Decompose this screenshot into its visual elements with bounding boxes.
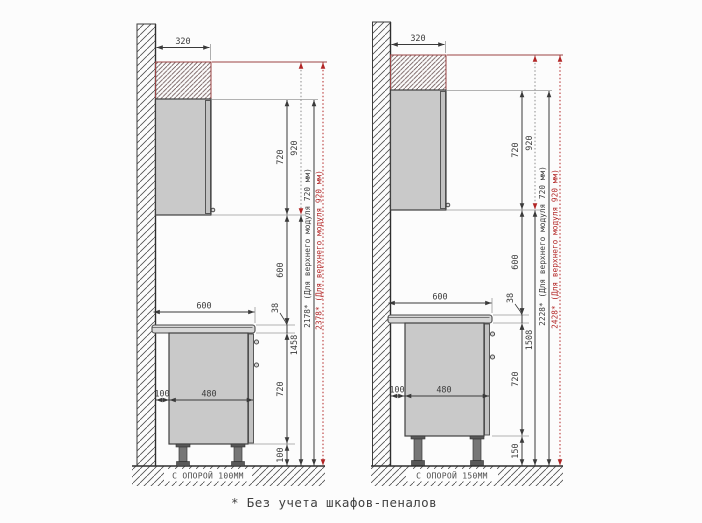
dim-total-920: 2428* (Для верхнего модуля 920 мм)	[551, 169, 560, 329]
door-knob	[254, 363, 258, 367]
dim-upper-width: 320	[175, 37, 190, 47]
dim-base-depth: 480	[201, 390, 216, 400]
dim-leg-height: 100	[276, 447, 286, 462]
dim-gap: 600	[276, 262, 286, 277]
wall	[372, 22, 391, 466]
wall-cabinet-920-extension	[391, 55, 447, 90]
dim-countertop-thickness: 38	[271, 303, 281, 313]
leg	[176, 444, 190, 466]
wall-cabinet	[156, 62, 215, 215]
drawing-canvas: С ОПОРОЙ 100ММ 320 720 920 600 38 1458	[0, 0, 702, 523]
drawer-knob	[254, 340, 258, 344]
dim-upper-height-920: 920	[525, 135, 535, 150]
dim-total-720: 2178* (Для верхнего модуля 720 мм)	[303, 168, 312, 328]
wall	[137, 24, 157, 466]
door-knob	[490, 355, 494, 359]
base-cabinet-front	[485, 324, 490, 435]
dim-gap: 600	[511, 254, 521, 269]
dim-total-920: 2378* (Для верхнего модуля 920 мм)	[315, 170, 324, 330]
leg	[470, 436, 484, 466]
dim-countertop-depth: 600	[432, 293, 447, 303]
thickness-leader	[280, 313, 287, 325]
left-diagram: С ОПОРОЙ 100ММ 320 720 920 600 38 1458	[132, 24, 327, 486]
wall-cabinet-knob	[211, 208, 215, 212]
right-diagram: С ОПОРОЙ 150ММ 320 720 920 600 38 1508	[371, 22, 563, 486]
footnote: * Без учета шкафов-пеналов	[231, 495, 437, 510]
dim-countertop-thickness: 38	[506, 293, 516, 303]
kitchen-dimensions-drawing: С ОПОРОЙ 100ММ 320 720 920 600 38 1458	[0, 0, 702, 523]
drawer-knob	[490, 332, 494, 336]
dim-base-height: 720	[511, 371, 521, 386]
dim-bottom-height: 1508	[525, 330, 535, 350]
dim-upper-height-920: 920	[290, 140, 300, 155]
wall-cabinet	[391, 55, 450, 210]
thickness-leader	[515, 304, 522, 315]
leg	[411, 436, 425, 466]
dim-total-720: 2228* (Для верхнего модуля 720 мм)	[538, 166, 547, 326]
countertop	[152, 325, 255, 333]
dim-base-depth: 480	[436, 386, 451, 396]
dim-wall-offset: 100	[154, 390, 169, 400]
dim-upper-height-720: 720	[276, 149, 286, 164]
dim-countertop-depth: 600	[196, 302, 211, 312]
base-cabinet-front	[249, 334, 254, 443]
support-label: С ОПОРОЙ 150ММ	[416, 470, 488, 481]
wall-cabinet-door	[206, 101, 211, 214]
dim-upper-width: 320	[410, 34, 425, 44]
dim-base-height: 720	[276, 381, 286, 396]
countertop	[388, 315, 492, 323]
wall-cabinet-knob	[446, 203, 450, 207]
dim-leg-height: 150	[511, 443, 521, 458]
dim-wall-offset: 100	[389, 386, 404, 396]
leg	[231, 444, 245, 466]
wall-cabinet-door	[441, 92, 446, 209]
dim-upper-height-720: 720	[511, 142, 521, 157]
wall-cabinet-920-extension	[156, 62, 212, 99]
support-label: С ОПОРОЙ 100ММ	[172, 470, 244, 481]
dim-bottom-height: 1458	[290, 335, 300, 355]
